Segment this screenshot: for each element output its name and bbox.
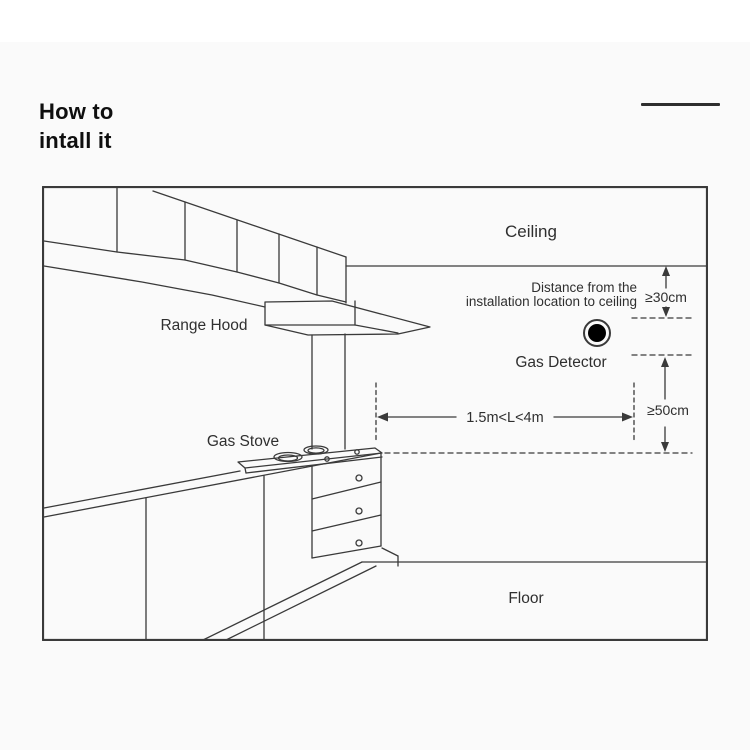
drawer-knob (356, 475, 362, 481)
drawer-knob (356, 540, 362, 546)
installation-diagram: Ceiling Floor Range Hood Gas Stove Gas D… (42, 186, 708, 641)
gas-stove (238, 446, 382, 473)
counter-cabinets (44, 453, 398, 640)
arrow-down-icon (662, 307, 670, 317)
drawer-knob (356, 508, 362, 514)
top-right-rule (641, 103, 720, 106)
arrow-down-icon (661, 442, 669, 452)
stove-distance-label: 1.5m<L<4m (466, 410, 543, 426)
arrow-right-icon (622, 413, 633, 422)
gas-detector-dot (588, 324, 606, 342)
ceiling-label: Ceiling (505, 222, 557, 241)
burner-ring (308, 448, 324, 453)
arrow-left-icon (377, 413, 388, 422)
arrow-up-icon (662, 266, 670, 276)
page-title-line1: How to (39, 97, 114, 126)
diagram-labels: Ceiling Floor Range Hood Gas Stove Gas D… (160, 222, 688, 607)
floor-label: Floor (508, 590, 543, 607)
arrow-up-icon (661, 357, 669, 367)
range-hood (265, 301, 430, 449)
diagram-lines (43, 187, 707, 640)
min-floor-distance-label: ≥50cm (647, 402, 689, 418)
upper-cabinets (44, 188, 346, 307)
min-ceiling-distance-label: ≥30cm (645, 289, 687, 305)
distance-note-line1: Distance from the (531, 280, 637, 295)
distance-note-line2: installation location to ceiling (466, 294, 637, 309)
gas-detector-label: Gas Detector (515, 354, 606, 371)
page-title-line2: intall it (39, 126, 114, 155)
range-hood-label: Range Hood (160, 317, 247, 334)
page-title: How to intall it (39, 97, 114, 155)
gas-stove-label: Gas Stove (207, 433, 279, 450)
drawer-unit (312, 453, 381, 558)
kitchen-diagram: Ceiling Floor Range Hood Gas Stove Gas D… (42, 186, 708, 641)
